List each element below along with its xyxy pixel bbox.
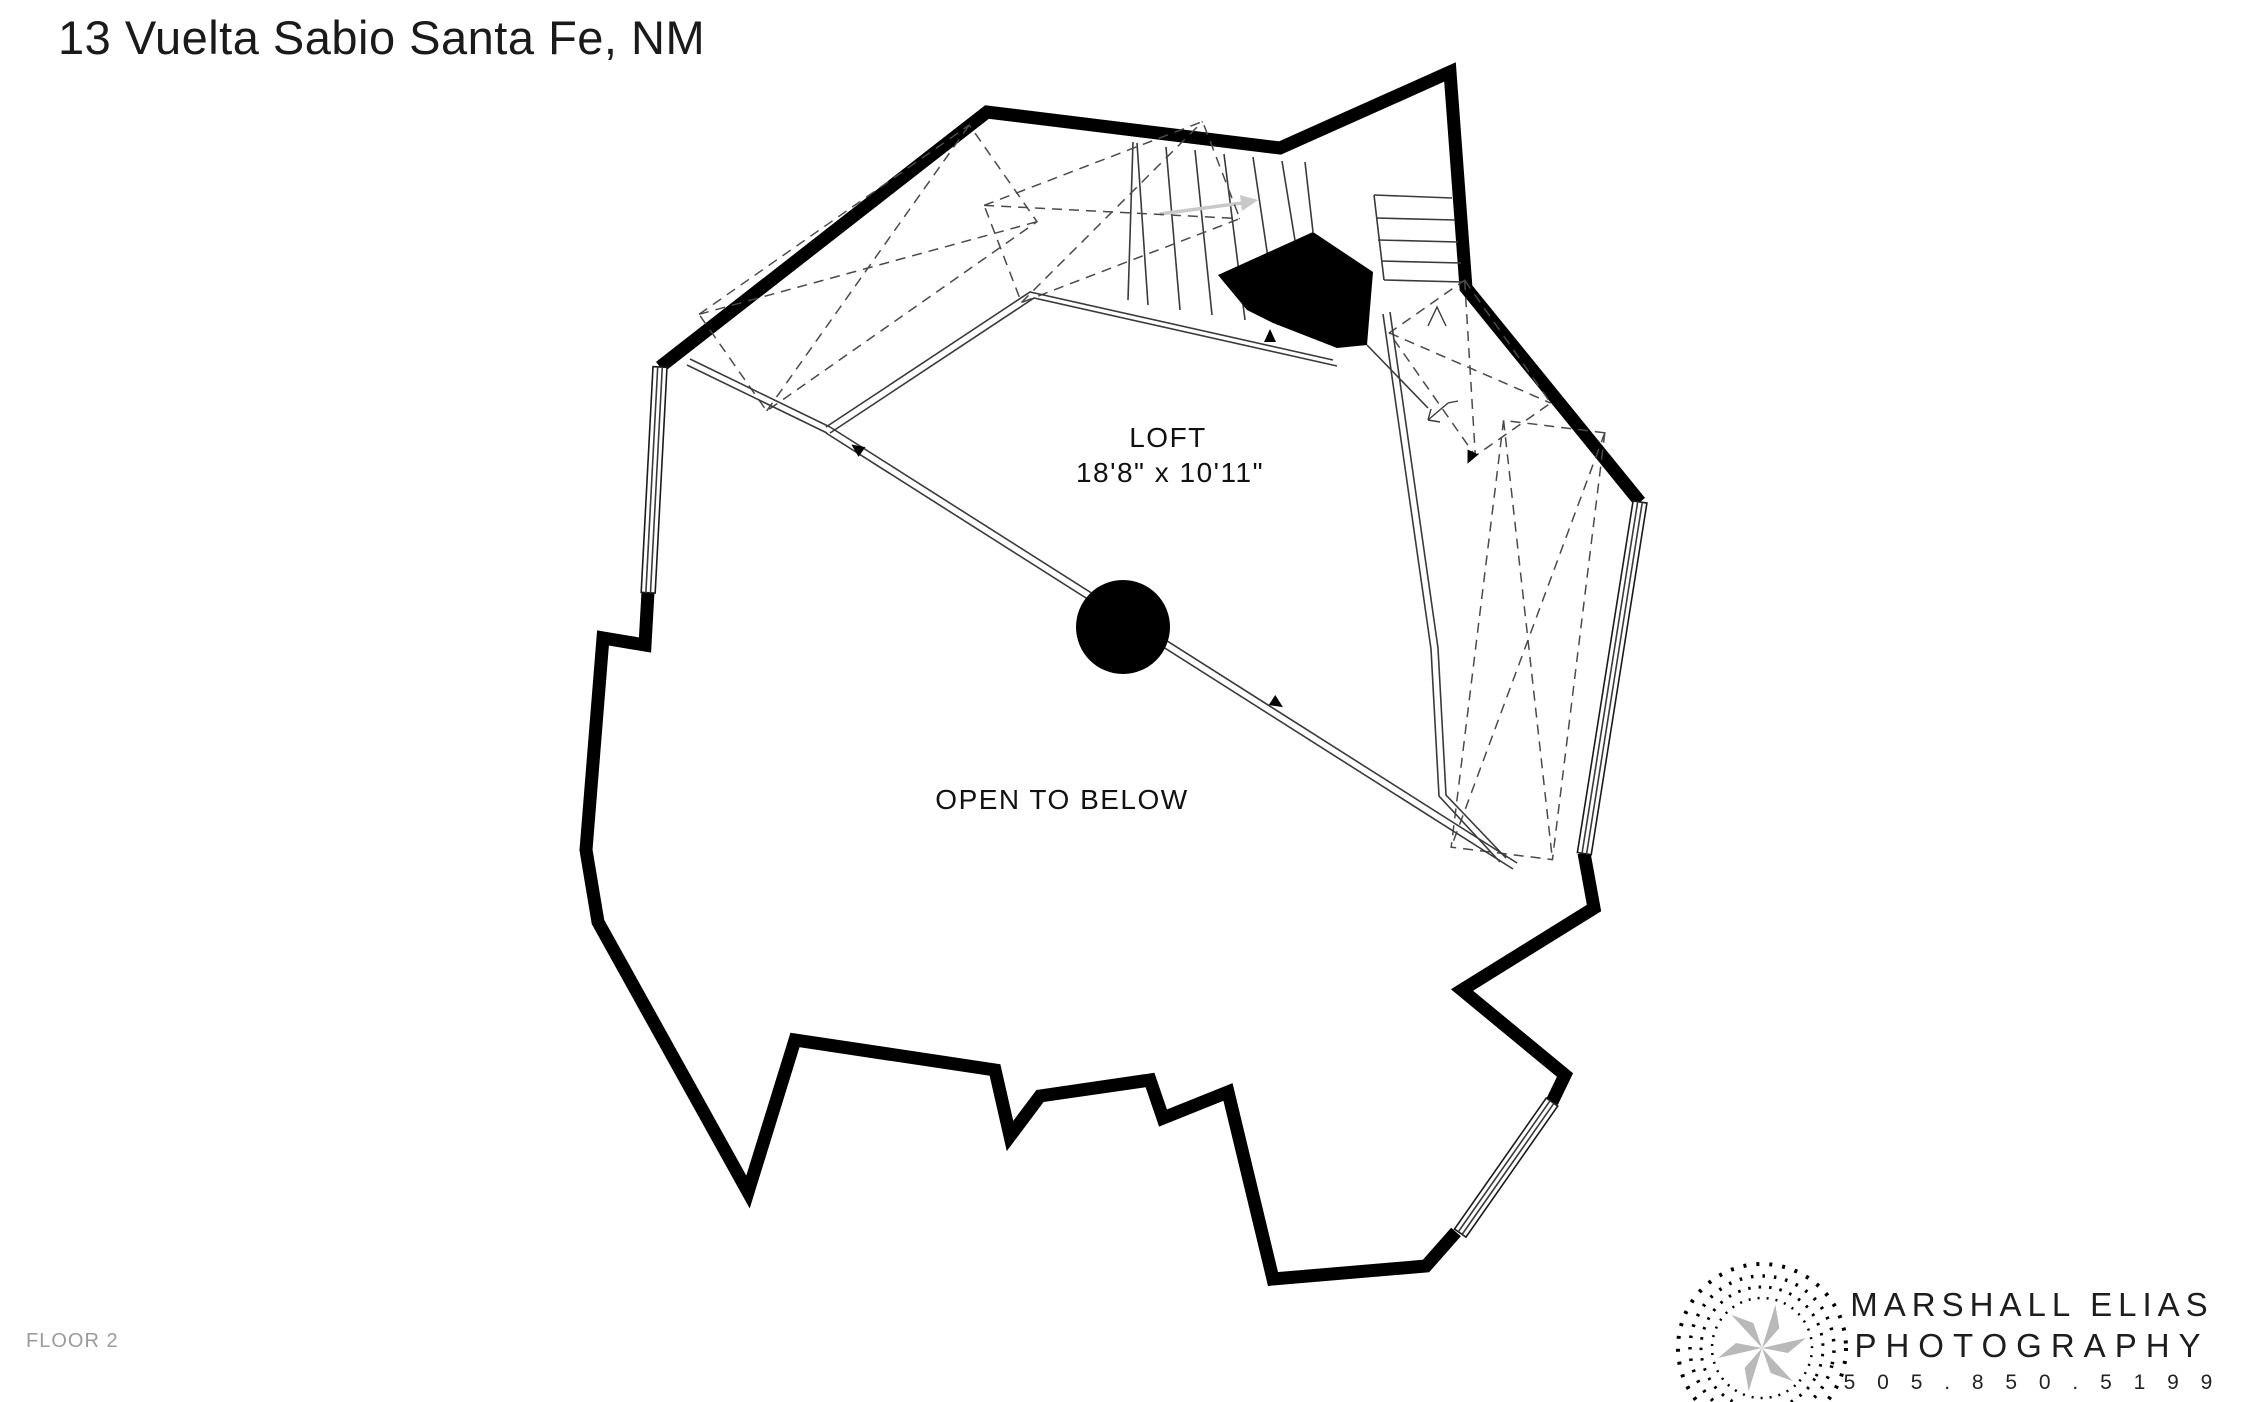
up-arrow-outline: [1428, 307, 1446, 326]
railing-arrow-right: [1269, 695, 1286, 712]
wall-bottom-left: [586, 592, 1456, 1279]
room-label: LOFT: [1129, 422, 1207, 454]
boundary-arrow-right: [1462, 449, 1478, 466]
window-right-lower: [1454, 1098, 1557, 1237]
logo-name: MARSHALL ELIAS: [1822, 1286, 2242, 1324]
stair-direction-arrow: [1160, 195, 1258, 214]
logo-type: PHOTOGRAPHY: [1822, 1327, 2242, 1365]
stair-arrow-up: [1264, 329, 1276, 342]
room-dimensions: 18'8" x 10'11": [1076, 457, 1264, 489]
closet-dashed-left: [699, 125, 1037, 411]
logo-camera-star: [1718, 1305, 1806, 1391]
floor-label: FLOOR 2: [26, 1330, 119, 1353]
loft-right-boundary: [1383, 312, 1506, 862]
floor-plan-svg: [0, 0, 2245, 1402]
logo-text-block: MARSHALL ELIAS PHOTOGRAPHY 5 0 5 . 8 5 0…: [1822, 1286, 2242, 1395]
open-to-below-label: OPEN TO BELOW: [935, 784, 1188, 816]
logo-phone: 5 0 5 . 8 5 0 . 5 1 9 9: [1822, 1371, 2242, 1395]
structural-column: [1076, 580, 1170, 674]
down-left-arrow-outline: [1428, 401, 1458, 422]
closet-dashed-small: [1389, 280, 1550, 456]
window-right-upper: [1577, 501, 1647, 855]
stair-landing-solid: [1218, 232, 1373, 348]
window-left: [641, 367, 667, 593]
stair-run-lower: [1367, 195, 1463, 408]
loft-boundary: [687, 292, 1337, 433]
exterior-wall: [586, 72, 1640, 1279]
closet-dashed-right: [1451, 420, 1605, 859]
wall-right-notch: [1462, 853, 1594, 1102]
